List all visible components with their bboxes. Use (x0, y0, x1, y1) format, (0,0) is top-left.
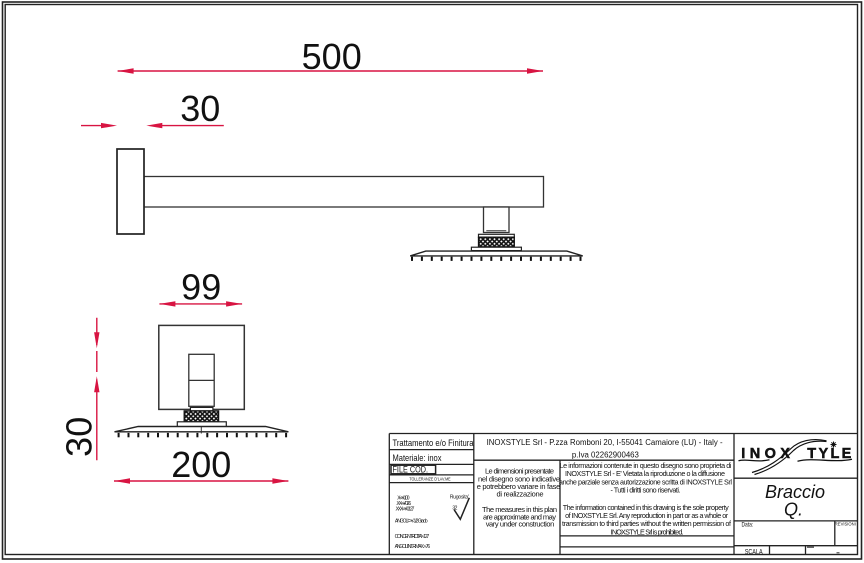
svg-text:p.Iva 02262900463: p.Iva 02262900463 (572, 450, 640, 459)
svg-text:Q.: Q. (784, 500, 803, 520)
svg-text:Trattamento e/o Finitura: Trattamento e/o Finitura (393, 438, 475, 449)
svg-text:INOXSTYLE Srl is prohibited.: INOXSTYLE Srl is prohibited. (611, 527, 684, 536)
svg-text:200: 200 (171, 444, 231, 485)
svg-text:ANGOLI = +/- 1/2 Grado: ANGOLI = +/- 1/2 Grado (395, 519, 428, 525)
svg-text:99: 99 (181, 267, 221, 308)
svg-text:REVISIONI: REVISIONI (835, 521, 856, 526)
svg-text:ANGOLI INT. R.MAX > .76: ANGOLI INT. R.MAX > .76 (395, 544, 431, 550)
svg-text:30: 30 (180, 88, 220, 129)
svg-text:500: 500 (302, 36, 362, 77)
svg-text:vary under construction: vary under construction (486, 519, 555, 528)
svg-text:di realizzazione: di realizzazione (497, 489, 544, 498)
svg-text:FILE COD.: FILE COD. (393, 465, 429, 476)
svg-text:SCALA: SCALA (745, 547, 763, 556)
svg-text:CONCENTRICITA' > .127: CONCENTRICITA' > .127 (395, 534, 430, 540)
svg-text:TOLLERANZE D'LAV.ME: TOLLERANZE D'LAV.ME (409, 477, 450, 482)
svg-text:INOXSTYLE Srl - P.zza Romboni: INOXSTYLE Srl - P.zza Romboni 20, I-5504… (487, 438, 723, 447)
svg-text:Materiale: inox: Materiale: inox (393, 453, 442, 464)
svg-text:.XXX<+/- 0.127: .XXX<+/- 0.127 (395, 507, 414, 513)
svg-text:Data:: Data: (742, 523, 754, 529)
svg-text:Rugosita': Rugosita' (450, 495, 469, 501)
svg-text:- Tutti i diritti sono riserva: - Tutti i diritti sono riservati. (611, 486, 681, 495)
svg-text:30: 30 (59, 417, 100, 457)
